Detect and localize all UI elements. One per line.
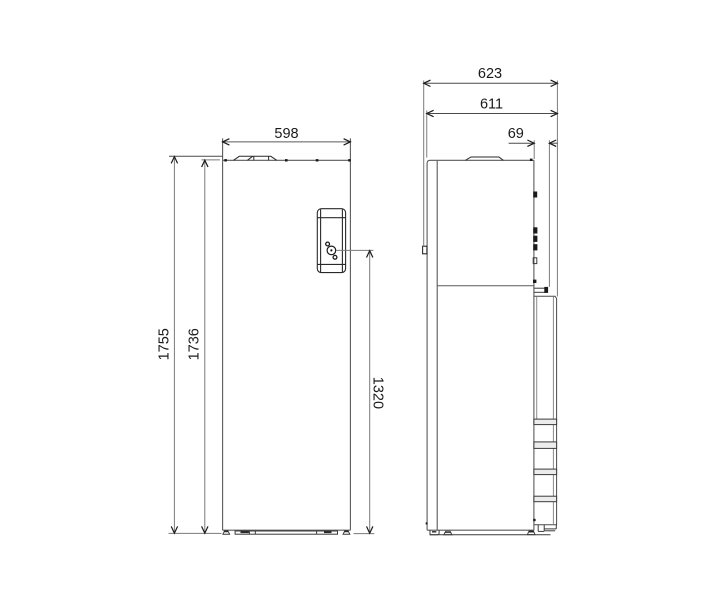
svg-text:623: 623 (478, 66, 502, 82)
svg-text:69: 69 (508, 126, 524, 142)
svg-text:1736: 1736 (186, 328, 202, 360)
svg-text:611: 611 (480, 97, 503, 113)
svg-text:598: 598 (274, 126, 298, 142)
svg-text:1320: 1320 (369, 377, 385, 409)
svg-text:1755: 1755 (157, 328, 173, 360)
